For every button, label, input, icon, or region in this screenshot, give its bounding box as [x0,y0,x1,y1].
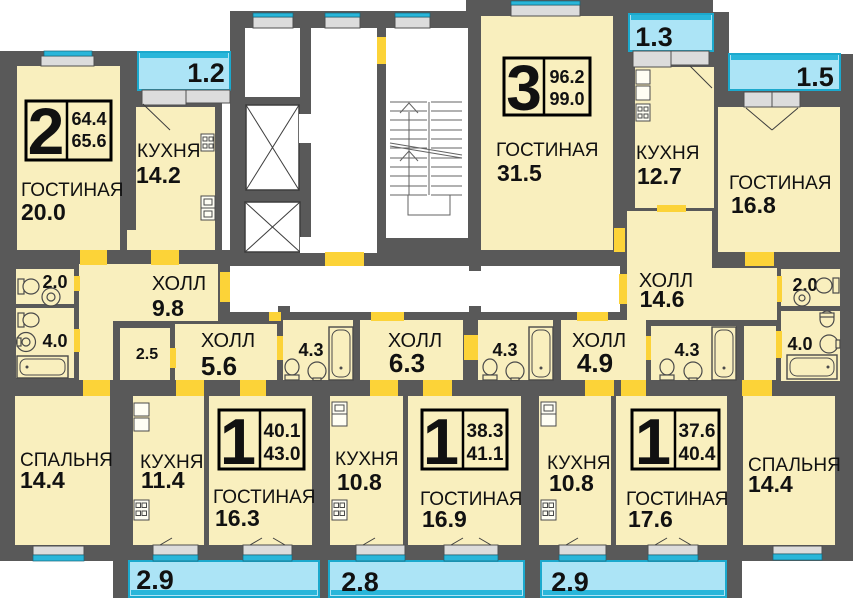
svg-text:4.3: 4.3 [298,340,323,360]
svg-text:99.0: 99.0 [549,89,584,109]
svg-text:ГОСТИНАЯ: ГОСТИНАЯ [496,140,598,161]
svg-text:37.6: 37.6 [679,421,716,442]
svg-text:10.8: 10.8 [549,470,594,496]
svg-text:9.8: 9.8 [152,295,184,321]
svg-text:41.1: 41.1 [467,444,504,465]
svg-text:20.0: 20.0 [21,199,66,225]
svg-text:2.5: 2.5 [136,346,158,363]
svg-text:1: 1 [635,405,671,478]
svg-text:2.9: 2.9 [551,567,589,597]
svg-text:1.2: 1.2 [187,58,225,88]
svg-text:1.5: 1.5 [796,62,834,92]
svg-text:10.8: 10.8 [337,469,382,495]
svg-text:12.7: 12.7 [637,163,682,189]
svg-text:ХОЛЛ: ХОЛЛ [152,273,206,295]
svg-text:КУХНЯ: КУХНЯ [636,143,699,164]
svg-text:1: 1 [220,405,256,478]
svg-text:4.3: 4.3 [674,340,699,360]
svg-text:43.0: 43.0 [264,444,301,465]
svg-text:40.1: 40.1 [264,421,301,442]
svg-text:КУХНЯ: КУХНЯ [335,449,398,470]
svg-text:4.9: 4.9 [577,348,613,378]
svg-text:КУХНЯ: КУХНЯ [137,141,200,162]
svg-text:4.0: 4.0 [787,334,812,354]
svg-text:14.6: 14.6 [640,286,685,312]
svg-text:14.4: 14.4 [20,467,65,493]
svg-text:11.4: 11.4 [141,467,185,493]
svg-text:4.3: 4.3 [492,340,517,360]
svg-text:38.3: 38.3 [467,421,504,442]
svg-text:14.2: 14.2 [136,162,181,188]
svg-text:96.2: 96.2 [549,67,584,87]
svg-text:2.9: 2.9 [136,565,174,595]
svg-text:ГОСТИНАЯ: ГОСТИНАЯ [21,180,123,201]
svg-text:17.6: 17.6 [628,506,673,532]
svg-text:16.3: 16.3 [215,505,260,531]
svg-text:6.3: 6.3 [389,348,425,378]
svg-text:64.4: 64.4 [71,109,106,129]
svg-text:ХОЛЛ: ХОЛЛ [201,330,255,352]
svg-text:16.9: 16.9 [422,506,467,532]
svg-text:3: 3 [506,52,542,124]
svg-text:31.5: 31.5 [497,160,542,186]
svg-text:ГОСТИНАЯ: ГОСТИНАЯ [729,173,831,194]
svg-text:16.8: 16.8 [731,192,776,218]
svg-text:14.4: 14.4 [748,471,793,497]
svg-text:1: 1 [423,405,459,478]
svg-text:40.4: 40.4 [679,444,716,465]
svg-text:2.8: 2.8 [341,567,379,597]
svg-text:2: 2 [28,94,65,168]
svg-text:4.0: 4.0 [42,331,67,351]
svg-text:1.3: 1.3 [635,22,673,52]
svg-text:65.6: 65.6 [71,131,106,151]
svg-text:5.6: 5.6 [201,351,237,381]
